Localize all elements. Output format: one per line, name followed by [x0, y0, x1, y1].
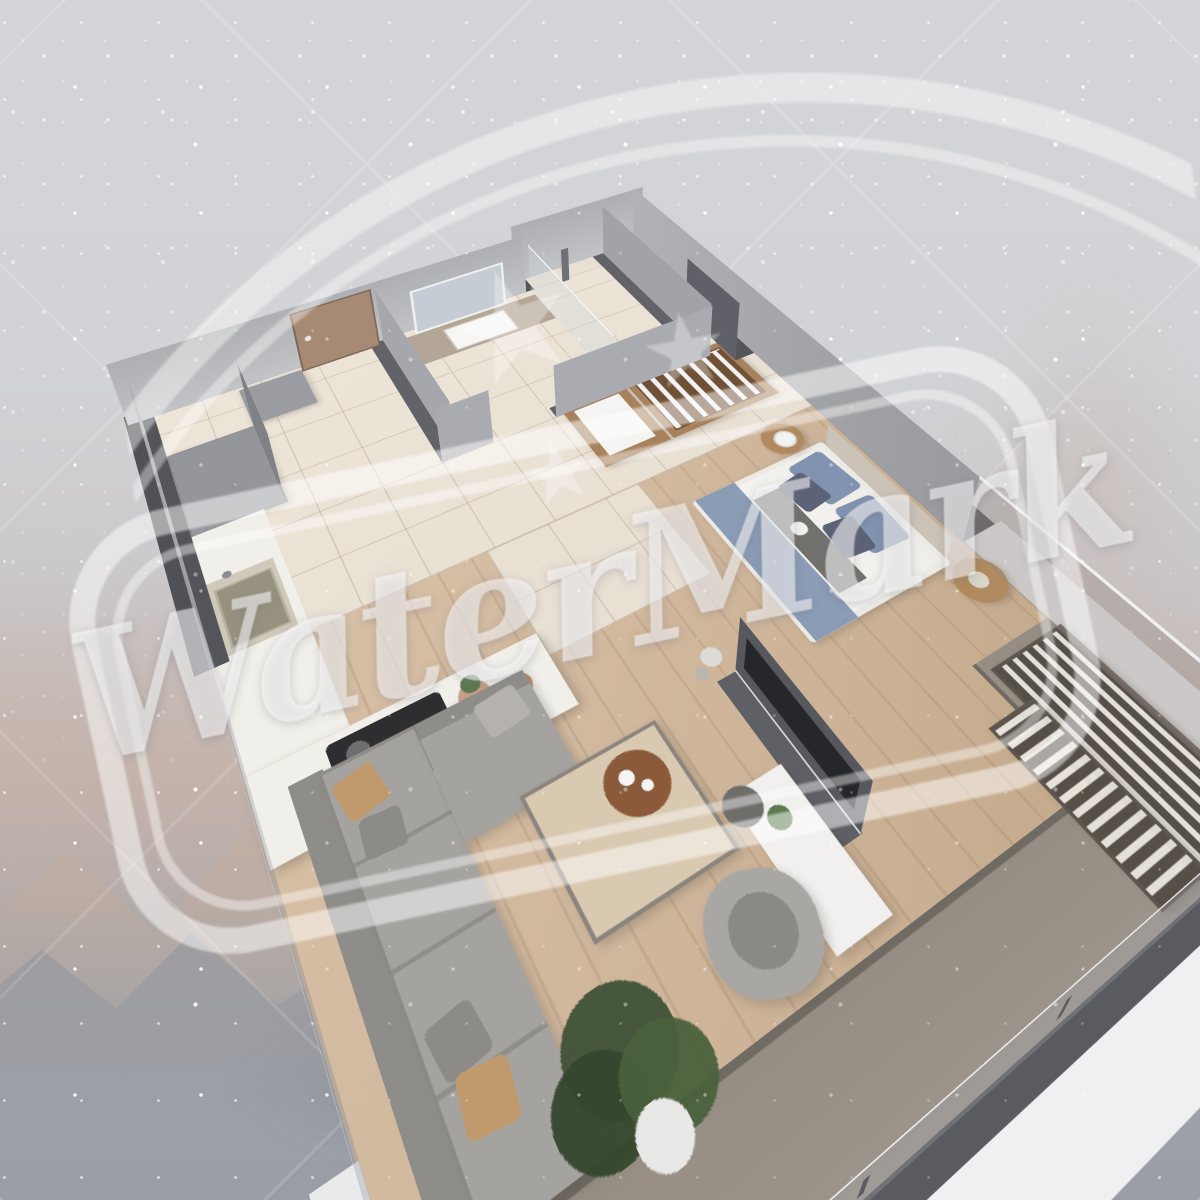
- scene-root: ★ ★ ★ WaterMark: [0, 0, 1200, 1200]
- shower-head: [561, 248, 569, 282]
- floorplan-stage: [70, 0, 1130, 1200]
- door-handle: [304, 335, 311, 342]
- floorplan: [140, 251, 1200, 1200]
